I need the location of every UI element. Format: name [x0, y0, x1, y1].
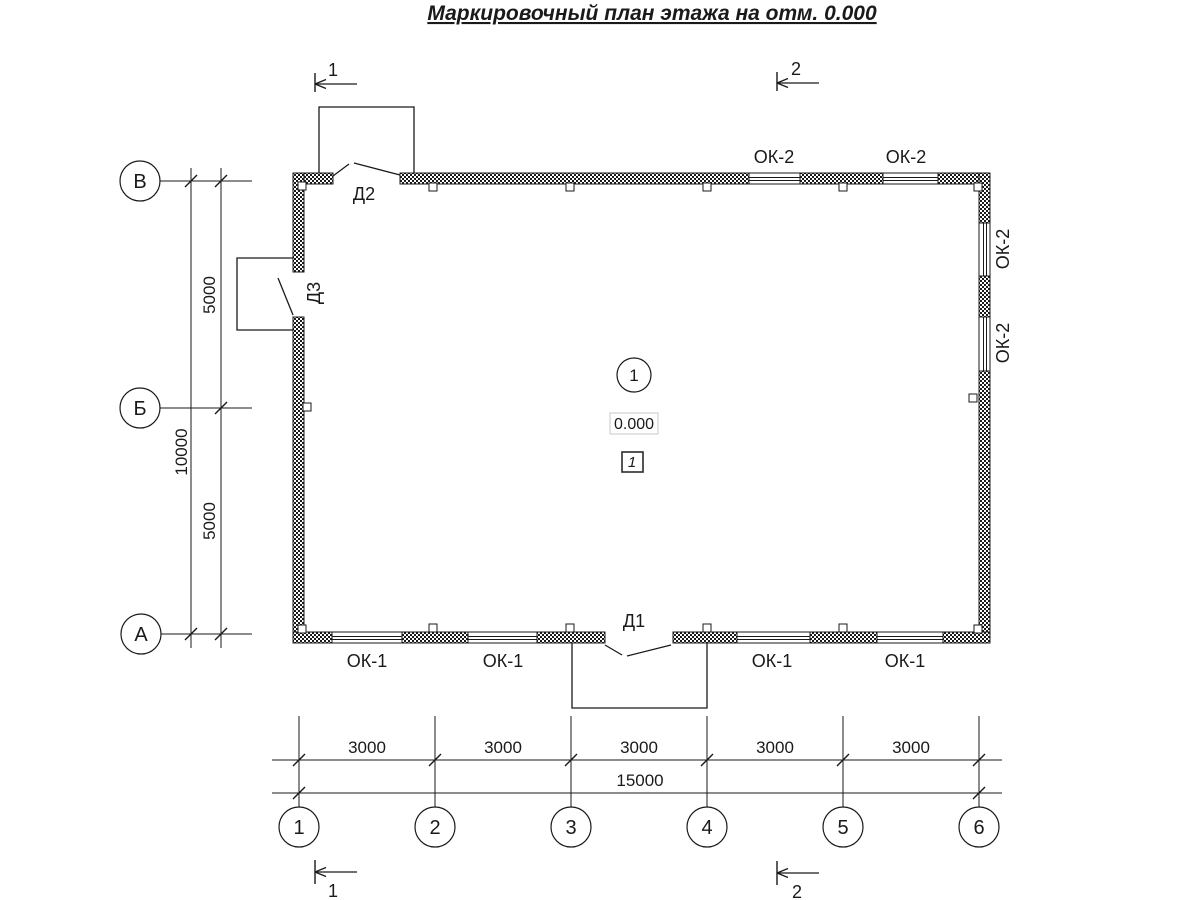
element-labels: ОК-2 ОК-2 ОК-2 ОК-2 ОК-1 ОК-1 ОК-1 ОК-1 … — [304, 147, 1013, 671]
dim-15000: 15000 — [616, 771, 663, 790]
window-symbols — [332, 173, 990, 643]
section-mark-top-1: 1 — [315, 60, 357, 92]
floor-plan-svg: Маркировочный план этажа на отм. 0.000 — [0, 0, 1200, 900]
window-label-ok1-3: ОК-1 — [752, 651, 793, 671]
window-label-ok2-right-2: ОК-2 — [993, 323, 1013, 364]
door-label-d2: Д2 — [353, 184, 375, 204]
porch-d2 — [319, 107, 414, 173]
door-leaf-d2 — [354, 163, 400, 175]
axis-label: 1 — [293, 817, 304, 839]
drawing-sheet: Маркировочный план этажа на отм. 0.000 — [0, 0, 1200, 900]
window-label-ok1-4: ОК-1 — [885, 651, 926, 671]
dim-3000: 3000 — [892, 738, 930, 757]
section-number: 2 — [791, 59, 801, 79]
row-axes: В Б А — [120, 161, 252, 654]
section-number: 1 — [328, 60, 338, 80]
window-label-ok1-2: ОК-1 — [483, 651, 524, 671]
door-leaf-d1 — [605, 645, 622, 655]
dim-3000: 3000 — [756, 738, 794, 757]
dim-3000: 3000 — [348, 738, 386, 757]
room-symbols: 1 0.000 1 — [610, 358, 658, 472]
axis-label: А — [134, 624, 148, 646]
window-label-ok2-right-1: ОК-2 — [993, 229, 1013, 270]
section-mark-bottom-1: 1 — [315, 860, 357, 900]
room-number: 1 — [628, 454, 636, 471]
window-label-ok2-top-2: ОК-2 — [886, 147, 927, 167]
pilaster-marks — [298, 182, 982, 633]
door-leaves — [278, 163, 671, 656]
axis-label: 5 — [837, 817, 848, 839]
dim-3000: 3000 — [484, 738, 522, 757]
window-label-ok1-1: ОК-1 — [347, 651, 388, 671]
drawing-title: Маркировочный план этажа на отм. 0.000 — [427, 2, 877, 25]
axis-label: Б — [133, 398, 146, 420]
window-label-ok2-top-1: ОК-2 — [754, 147, 795, 167]
section-mark-bottom-2: 2 — [777, 861, 819, 900]
walls — [293, 173, 990, 643]
dim-10000: 10000 — [172, 428, 191, 475]
door-leaf-d3 — [278, 278, 293, 315]
axis-label: 4 — [701, 817, 712, 839]
room-axis-ref: 1 — [629, 366, 638, 385]
section-number: 2 — [792, 882, 802, 900]
dim-3000: 3000 — [620, 738, 658, 757]
axis-label: 3 — [565, 817, 576, 839]
section-mark-top-2: 2 — [777, 59, 819, 91]
door-leaf-d1 — [627, 645, 671, 656]
door-label-d3: Д3 — [304, 282, 324, 304]
bottom-dimensions: 3000 3000 3000 3000 3000 15000 — [272, 738, 1002, 799]
dim-5000-lower: 5000 — [200, 502, 219, 540]
section-number: 1 — [328, 881, 338, 900]
dim-5000-upper: 5000 — [200, 276, 219, 314]
axis-label: 6 — [973, 817, 984, 839]
door-leaf-d2 — [333, 164, 349, 176]
axis-label: В — [133, 171, 146, 193]
door-label-d1: Д1 — [623, 611, 645, 631]
axis-label: 2 — [429, 817, 440, 839]
elevation-value: 0.000 — [614, 416, 654, 433]
